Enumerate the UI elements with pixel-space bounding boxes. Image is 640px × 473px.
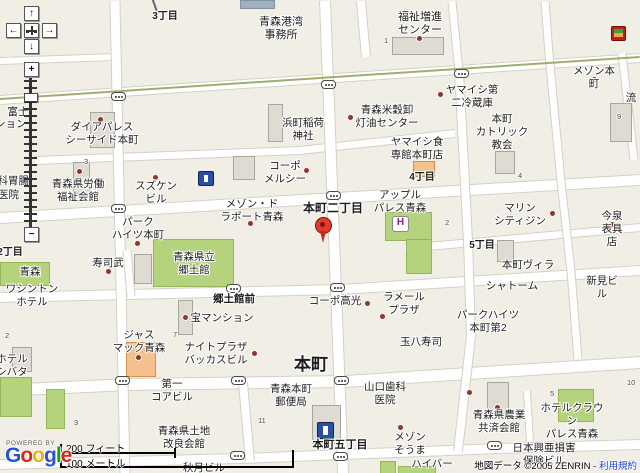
road	[567, 271, 583, 360]
google-logo-letter: o	[32, 444, 44, 467]
map-label: 秋月ビル	[183, 462, 225, 473]
pan-left-button[interactable]: ←	[6, 23, 21, 38]
building	[233, 156, 255, 180]
map-marker-pin[interactable]	[314, 217, 332, 245]
map-label: 3丁目	[152, 11, 178, 23]
green-area	[406, 239, 432, 274]
map-label: 本町	[294, 355, 328, 376]
map-label: 青森県土地 改良会館	[158, 425, 211, 451]
road	[541, 1, 554, 55]
road	[448, 1, 464, 72]
map-canvas[interactable]: H3丁目青森港湾 事務所福祉増進 センターメゾン本町流富士マンションダイアパレス…	[0, 0, 640, 473]
traffic-signal-icon	[333, 452, 348, 461]
zoom-tick	[24, 199, 37, 201]
map-label: ハイバー	[411, 458, 453, 471]
map-label: メゾン・ド ラポート青森	[221, 198, 284, 224]
zoom-tick	[24, 80, 37, 82]
building	[495, 151, 515, 174]
map-label: 福祉増進 センター	[398, 11, 442, 38]
map-label: 寿司武	[92, 257, 124, 270]
map-label: マリン シティジン	[494, 202, 546, 228]
pan-center-button[interactable]	[24, 23, 39, 38]
map-label: ホテル シバタ	[0, 353, 28, 379]
traffic-signal-icon	[111, 92, 126, 101]
pan-down-button[interactable]: ↓	[24, 39, 39, 54]
zoom-tick	[24, 220, 37, 222]
zoom-tick	[24, 143, 37, 145]
map-label: 玉八寿司	[400, 336, 442, 349]
poi-dot	[135, 354, 142, 361]
pin-hole	[320, 222, 325, 227]
map-label: アップル パレス青森	[374, 189, 427, 215]
traffic-signal-icon	[111, 204, 126, 213]
map-label: 青森	[20, 266, 41, 279]
poi-dot	[437, 91, 444, 98]
map-label: コーポ高光	[309, 295, 362, 308]
map-label: ナイトプラザ バッカスビル	[185, 341, 248, 367]
pin-tip	[320, 231, 326, 243]
road	[557, 181, 576, 272]
block-number: 1	[384, 36, 388, 45]
map-label: 新見ビル	[583, 275, 621, 301]
map-label: 青森県農業 共済会館	[473, 409, 526, 435]
road	[545, 54, 566, 182]
poi-dot	[251, 350, 258, 357]
map-label: 山口歯科 医院	[364, 381, 406, 407]
map-label: 医院	[0, 189, 19, 202]
block-number: 3	[84, 157, 88, 166]
zoom-tick	[24, 136, 37, 138]
map-label: パークハイツ 本町第2	[457, 309, 519, 335]
public-building-icon[interactable]	[198, 171, 214, 186]
map-label: マンション	[0, 118, 27, 131]
water-building	[240, 0, 275, 9]
map-label: 流	[626, 92, 637, 105]
zoom-slider-thumb[interactable]	[24, 93, 38, 102]
zoom-tick	[24, 150, 37, 152]
map-label: 第一 コアビル	[151, 378, 193, 404]
map-label: 今泉表具店	[598, 210, 626, 248]
poi-dot	[182, 314, 189, 321]
zoom-tick	[24, 171, 37, 173]
google-logo-letter: g	[44, 444, 56, 467]
map-label: ワシントン ホテル	[6, 283, 59, 309]
map-label: ヤマイシ食 専館本町店	[391, 136, 444, 162]
traffic-signal-icon	[321, 80, 336, 89]
poi-dot	[364, 300, 371, 307]
zoom-tick	[24, 192, 37, 194]
zoom-tick	[24, 87, 37, 89]
map-label: 青森港湾 事務所	[259, 16, 303, 43]
road-green-line	[0, 56, 640, 100]
zoom-tick	[24, 108, 37, 110]
map-label: 青森県労働 福祉会館	[52, 178, 105, 204]
map-label: ジャス マック青森	[113, 329, 166, 355]
map-label: ホテルクラウン パレス青森	[538, 402, 606, 440]
green-area	[380, 461, 396, 473]
google-logo-letter: e	[61, 444, 72, 467]
block-number: 5	[550, 389, 554, 398]
pan-up-button[interactable]: ↑	[24, 6, 39, 21]
map-copyright: 地図データ ©2005 ZENRIN - 利用規約	[474, 458, 637, 472]
map-label: 青森本町 郵便局	[270, 383, 312, 409]
block-number: 9	[617, 112, 621, 121]
traffic-signal-icon	[330, 283, 345, 292]
google-logo-letter: G	[5, 444, 20, 467]
building	[268, 104, 283, 142]
map-label: 青森米穀卸 灯油センター	[356, 104, 419, 130]
poi-dot	[397, 424, 404, 431]
green-area	[46, 389, 65, 429]
zoom-tick	[24, 129, 37, 131]
map-label: 宝マンション	[191, 312, 254, 325]
zoom-tick	[24, 115, 37, 117]
traffic-signal-icon	[487, 441, 502, 450]
map-label: 本町 カトリック 教会	[476, 113, 529, 151]
block-number: 4	[518, 171, 522, 180]
map-label: パーク ハイツ本町	[112, 216, 164, 242]
green-area	[0, 377, 32, 417]
poi-dot	[549, 210, 556, 217]
zoom-tick	[24, 164, 37, 166]
block-number: 2	[445, 218, 449, 227]
google-logo[interactable]: Google	[5, 444, 71, 468]
map-label: メゾン本町	[571, 65, 617, 91]
map-label: 4丁目	[409, 172, 435, 184]
map-label: コーポ メルシー	[264, 160, 306, 186]
road	[356, 1, 371, 58]
traffic-signal-icon	[231, 376, 246, 385]
map-label: ヤマイシ第 二冷蔵庫	[446, 84, 499, 110]
scale-feet-label: 200 フィート	[66, 440, 125, 455]
google-logo-letter: o	[20, 444, 32, 467]
map-label: 5丁目	[469, 240, 495, 252]
public-building-icon[interactable]	[317, 422, 334, 439]
traffic-signal-icon	[326, 191, 341, 200]
pan-right-button[interactable]: →	[42, 23, 57, 38]
traffic-signal-icon	[115, 376, 130, 385]
map-label: メゾン そうま	[394, 431, 426, 457]
zoom-tick	[24, 206, 37, 208]
traffic-signal-icon	[230, 451, 245, 460]
traffic-signal-icon	[454, 69, 469, 78]
map-label: スズケン ビル	[135, 180, 177, 206]
copyright-text: 地図データ ©2005 ZENRIN -	[474, 461, 599, 472]
map-label: 浜町稲荷 神社	[282, 117, 324, 143]
map-label: ダイアパレス シーサイド本町	[65, 121, 138, 147]
zoom-tick	[24, 157, 37, 159]
traffic-signal-icon	[226, 284, 241, 293]
road	[238, 383, 255, 462]
road	[0, 53, 115, 65]
block-number: 3	[74, 418, 78, 427]
poi-dot	[76, 168, 83, 175]
map-label: 本町五丁目	[313, 439, 368, 452]
poi-dot	[466, 389, 473, 396]
convenience-store-icon[interactable]	[611, 26, 626, 41]
scale-feet-line	[60, 452, 176, 454]
map-label: 2丁目	[0, 247, 23, 259]
block-number: 2	[5, 331, 9, 340]
zoom-tick	[24, 213, 37, 215]
building	[610, 103, 632, 142]
map-label: 本町ヴィラ	[502, 259, 555, 272]
zoom-out-button[interactable]: −	[24, 227, 39, 242]
map-label: シャトーム	[486, 280, 538, 293]
zoom-tick	[24, 122, 37, 124]
zoom-in-button[interactable]: +	[24, 62, 39, 77]
block-number: 11	[258, 416, 266, 425]
block-number: 7	[173, 330, 177, 339]
block-number: 10	[627, 378, 635, 387]
hotel-icon[interactable]: H	[392, 216, 409, 232]
map-label: ラメール プラザ	[383, 291, 425, 317]
zoom-tick	[24, 178, 37, 180]
zoom-tick	[24, 185, 37, 187]
map-label: 青森県立 郷土館	[173, 251, 215, 277]
map-label: 郷土館前	[213, 293, 255, 306]
terms-link[interactable]: 利用規約	[599, 461, 637, 472]
building	[134, 254, 152, 284]
traffic-signal-icon	[334, 376, 349, 385]
poi-dot	[347, 114, 354, 121]
map-label: 本町二丁目	[303, 201, 363, 216]
